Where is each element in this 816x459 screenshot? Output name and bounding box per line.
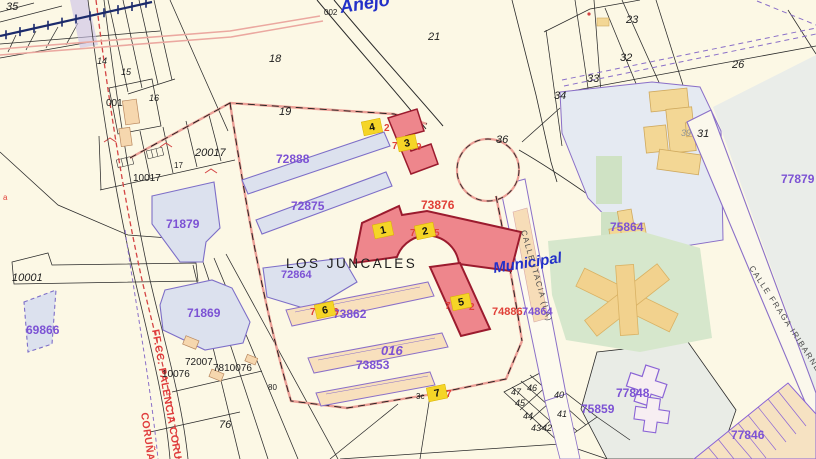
parcel-label-7810076: 7810076 bbox=[213, 363, 252, 374]
cadastral-map-canvas[interactable]: Anejo Municipal LOS JUNCALES CALLE ITACI… bbox=[0, 0, 816, 459]
parcel-label-35: 35 bbox=[6, 1, 19, 13]
parcel-label-10001: 10001 bbox=[12, 272, 43, 284]
parcel-label-39: 39 bbox=[681, 128, 691, 138]
map-viewport[interactable]: Anejo Municipal LOS JUNCALES CALLE ITACI… bbox=[0, 0, 816, 459]
parcel-label-71869: 71869 bbox=[187, 306, 221, 320]
parcel-label-41: 41 bbox=[557, 409, 567, 419]
fragment-near-marker5-left: 7 bbox=[445, 301, 451, 312]
parcel-label-33: 33 bbox=[587, 73, 600, 85]
parcel-label-43: 43 bbox=[531, 423, 541, 433]
parcel-label-72875: 72875 bbox=[291, 199, 325, 213]
parcel-label-46: 46 bbox=[527, 383, 537, 393]
parcel-label-76: 76 bbox=[219, 419, 232, 431]
parcel-label-44: 44 bbox=[523, 411, 533, 421]
campus-green-1 bbox=[596, 156, 622, 204]
parcel-label-18: 18 bbox=[269, 53, 282, 65]
fragment-near-marker4: 2 bbox=[384, 123, 390, 134]
parcel-label-72007: 72007 bbox=[185, 357, 213, 368]
parcel-label-14: 14 bbox=[97, 56, 107, 66]
parcel-label-15: 15 bbox=[121, 67, 132, 77]
parcel-label-71879: 71879 bbox=[166, 217, 200, 231]
parcel-label-77879: 77879 bbox=[781, 172, 815, 186]
parcel-label-19: 19 bbox=[279, 106, 291, 118]
parcel-label-20017: 20017 bbox=[194, 147, 226, 159]
parcel-label-17: 17 bbox=[174, 161, 183, 170]
parcel-label-3c: 3c bbox=[416, 392, 424, 401]
parcel-label-34: 34 bbox=[554, 90, 566, 102]
parcel-label-32: 32 bbox=[620, 52, 632, 64]
parcel-label-001: 001 bbox=[106, 98, 123, 109]
parcel-label-73876: 73876 bbox=[421, 198, 455, 212]
parcel-label-72888: 72888 bbox=[276, 152, 310, 166]
parcel-label-26: 26 bbox=[731, 59, 745, 71]
parcel-label-10076: 10076 bbox=[162, 369, 190, 380]
parcel-label-16: 16 bbox=[149, 93, 159, 103]
parcel-label-10017: 10017 bbox=[133, 173, 161, 184]
parcel-label-72864: 72864 bbox=[281, 269, 312, 281]
parcel-label-23: 23 bbox=[625, 14, 639, 26]
parcel-label-21: 21 bbox=[427, 31, 440, 43]
parcel-label-42: 42 bbox=[542, 423, 552, 433]
parcel-label-002: 002 bbox=[324, 8, 338, 17]
parcel-label-77846: 77846 bbox=[731, 428, 765, 442]
parcel-label-36: 36 bbox=[496, 134, 509, 146]
parcel-label-69866: 69866 bbox=[26, 323, 60, 337]
parcel-label-73853: 73853 bbox=[356, 358, 390, 372]
parcel-label-016: 016 bbox=[381, 343, 403, 358]
parcel-label-45: 45 bbox=[515, 398, 526, 408]
parcel-label-77848: 77848 bbox=[616, 386, 650, 400]
parcel-label-74886: 74886 bbox=[492, 306, 523, 318]
parcel-label-74864: 74864 bbox=[522, 306, 553, 318]
parcel-label-31: 31 bbox=[697, 128, 709, 140]
park-area bbox=[548, 231, 712, 352]
parcel-label-75859: 75859 bbox=[581, 402, 615, 416]
parcel-label-47: 47 bbox=[511, 387, 522, 397]
parcel-label-80: 80 bbox=[268, 383, 277, 392]
parcel-label-40: 40 bbox=[554, 390, 564, 400]
parcel-label-75864: 75864 bbox=[610, 220, 644, 234]
parcel-label-a: a bbox=[3, 193, 8, 202]
